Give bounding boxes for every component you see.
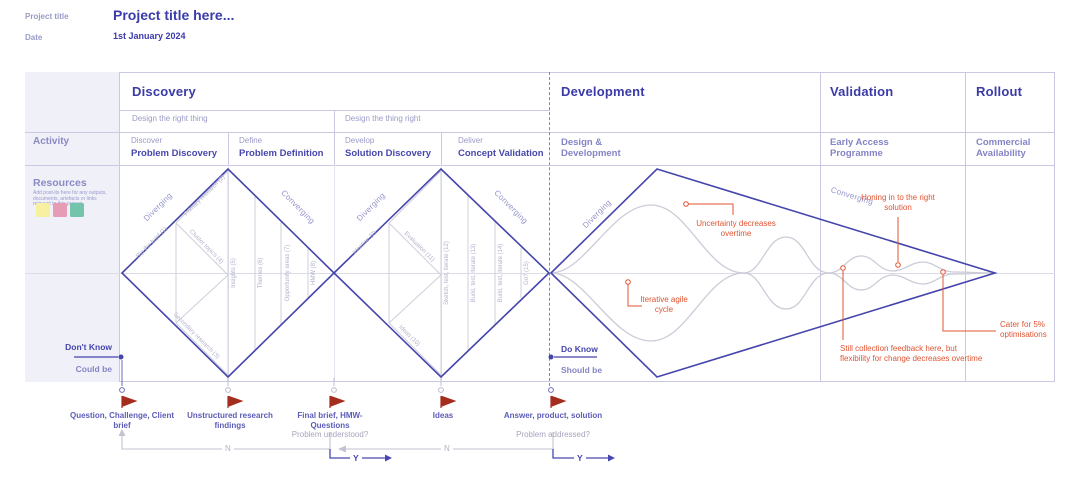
- flag-icon: [330, 396, 344, 408]
- flag-icon: [122, 396, 136, 408]
- milestone-label: Question, Challenge, Client brief: [67, 411, 177, 430]
- annotation-uncertainty: Uncertainty decreases overtime: [680, 219, 792, 238]
- development-boundary-dashed-line: [549, 72, 550, 386]
- annotation-honing: Honing in to the right solution: [853, 193, 943, 212]
- flag-icon: [228, 396, 242, 408]
- flag-icon: [551, 396, 565, 408]
- subheader-design-thing-right: Design the thing right: [345, 114, 421, 123]
- diamond2-step-label: Build, test, iterate (13): [471, 244, 477, 303]
- grid-line: [820, 72, 821, 382]
- milestone-label: Final brief, HMW-Questions: [285, 411, 375, 430]
- grid-line: [441, 132, 442, 165]
- phase-title-development: Development: [561, 84, 645, 99]
- n-loop-label: N: [222, 444, 234, 453]
- activity-stage: Develop: [345, 136, 374, 145]
- grid-line: [334, 110, 335, 165]
- phase-title-discovery: Discovery: [132, 84, 196, 99]
- dont-know-label: Don't Know: [40, 342, 112, 352]
- flag-icon: [441, 396, 455, 408]
- n-loop-label: N: [441, 444, 453, 453]
- should-be-label: Should be: [561, 365, 602, 375]
- grid-line: [228, 132, 229, 165]
- date-label: Date: [25, 33, 42, 42]
- activity-early-access: Early Access Programme: [830, 137, 910, 159]
- milestone-flag-icons: [122, 396, 565, 408]
- row-label-column: [25, 72, 120, 382]
- activity-design-development: Design & Development: [561, 137, 633, 159]
- milestone-question: Problem understood?: [270, 430, 390, 440]
- annotation-cater: Cater for 5% optimisations: [1000, 320, 1072, 339]
- milestone-label: Unstructured research findings: [183, 411, 278, 430]
- grid-line: [965, 72, 966, 382]
- y-arrow-label: Y: [350, 453, 362, 463]
- activity-stage: Deliver: [458, 136, 483, 145]
- diamond2-step-label: Go? (15): [524, 261, 530, 285]
- grid-line: [334, 165, 335, 382]
- activity-row-label: Activity: [33, 136, 69, 147]
- postit-teal[interactable]: [70, 203, 84, 217]
- grid-line: [228, 165, 229, 382]
- phase-title-rollout: Rollout: [976, 84, 1022, 99]
- milestone-label: Answer, product, solution: [503, 411, 603, 421]
- y-arrow-label: Y: [574, 453, 586, 463]
- diamond1-step-label: Insights (5): [231, 258, 237, 288]
- resources-row-label: Resources: [33, 177, 87, 189]
- date-value: 1st January 2024: [113, 31, 186, 41]
- annotation-agile-cycle: Iterative agile cycle: [638, 295, 690, 314]
- diamond1-step-label: HMW (8): [311, 261, 317, 285]
- project-title-value: Project title here...: [113, 7, 234, 23]
- activity-commercial: Commercial Availability: [976, 137, 1046, 159]
- milestone-label: Ideas: [413, 411, 473, 421]
- activity-name: Problem Discovery: [131, 148, 217, 159]
- grid-line: [25, 165, 1055, 166]
- process-centerline: [25, 273, 1055, 274]
- phase-title-validation: Validation: [830, 84, 893, 99]
- activity-name: Problem Definition: [239, 148, 323, 159]
- postit-pink[interactable]: [53, 203, 67, 217]
- activity-name: Concept Validation: [458, 148, 544, 159]
- diamond1-step-label: Themes (6): [258, 258, 264, 289]
- grid-line: [120, 110, 550, 111]
- grid-line: [25, 132, 1055, 133]
- could-be-label: Could be: [40, 364, 112, 374]
- annotation-feedback: Still collection feedback here, but flex…: [840, 344, 988, 363]
- y-arrow-lines: [330, 449, 615, 462]
- activity-name: Solution Discovery: [345, 148, 431, 159]
- project-title-label: Project title: [25, 12, 69, 21]
- diamond2-step-label: Build, test, iterate (14): [498, 244, 504, 303]
- activity-stage: Define: [239, 136, 262, 145]
- milestone-question: Problem addressed?: [493, 430, 613, 440]
- subheader-design-right-thing: Design the right thing: [132, 114, 208, 123]
- do-know-label: Do Know: [561, 344, 598, 354]
- postit-yellow[interactable]: [36, 203, 50, 217]
- activity-stage: Discover: [131, 136, 162, 145]
- diamond2-step-label: Sketch, test, iterate (12): [444, 241, 450, 305]
- grid-line: [441, 165, 442, 382]
- diamond1-step-label: Opportunity areas (7): [285, 245, 291, 302]
